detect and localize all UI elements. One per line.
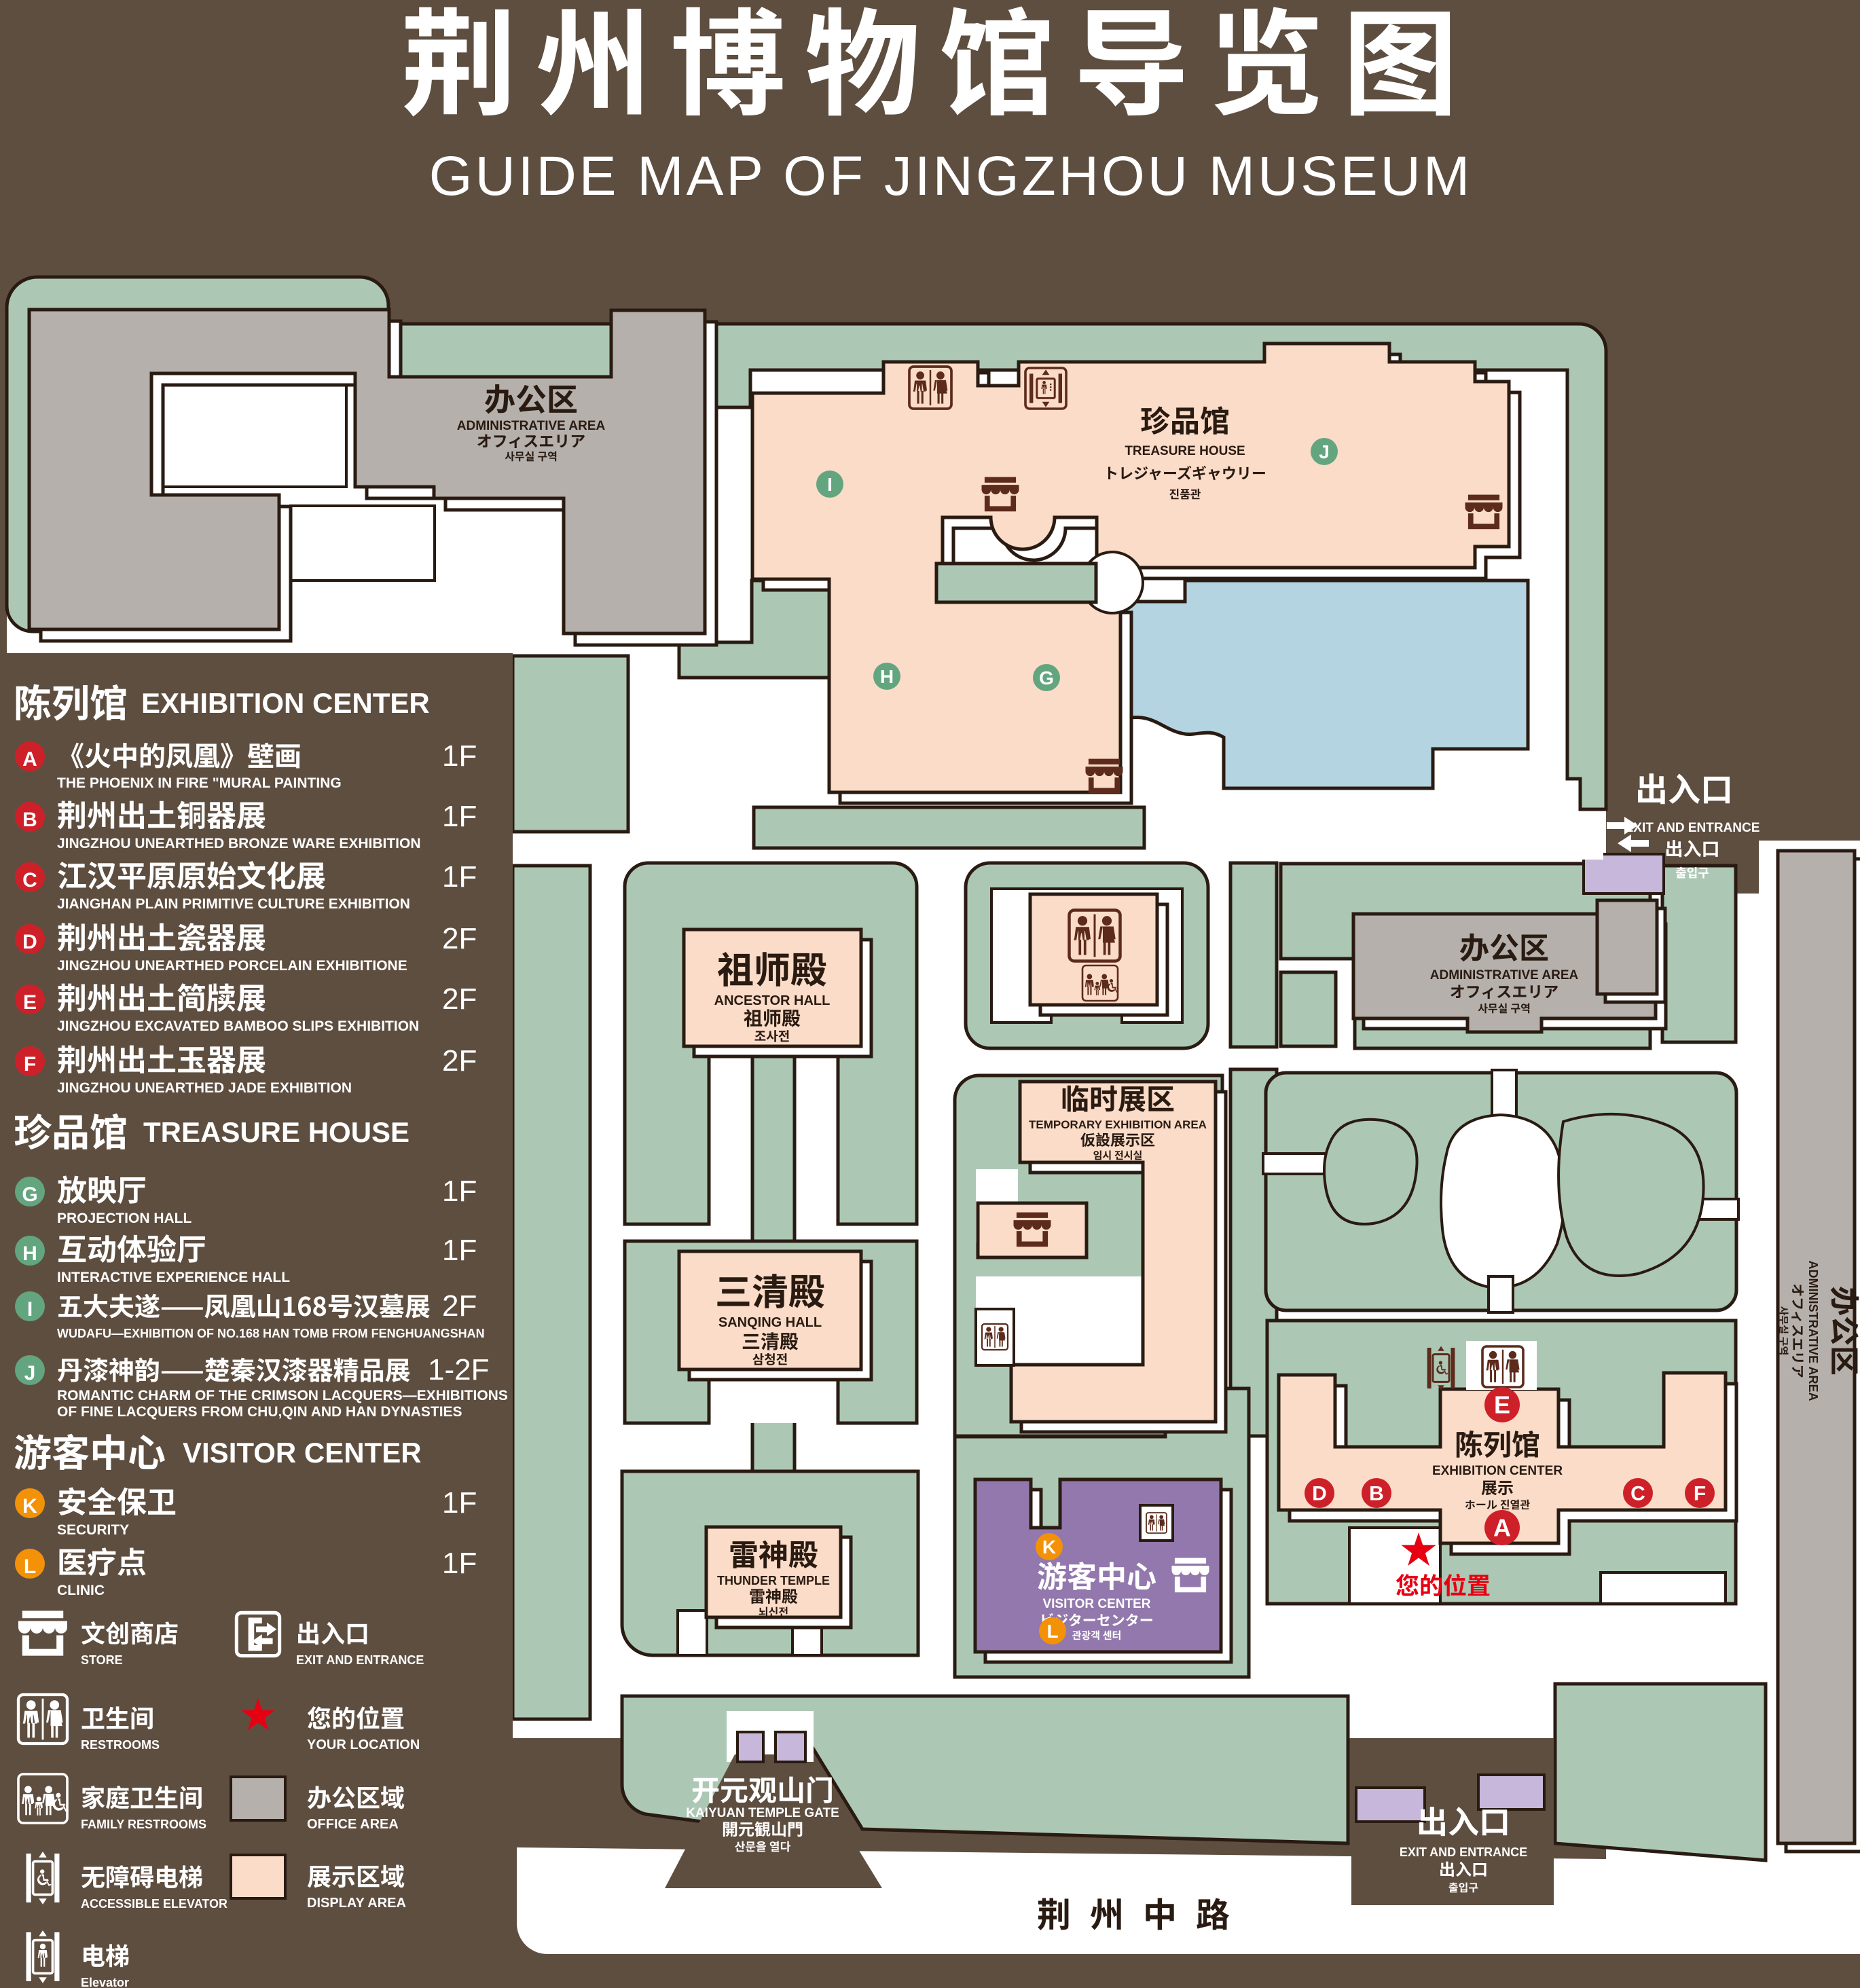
svg-text:뇌신전: 뇌신전 (759, 1603, 788, 1619)
svg-text:G: G (22, 1183, 37, 1206)
svg-text:安全保卫: 安全保卫 (57, 1478, 177, 1522)
svg-text:사무실 구역: 사무실 구역 (1478, 999, 1531, 1016)
svg-text:EXIT AND ENTRANCE: EXIT AND ENTRANCE (296, 1653, 424, 1667)
svg-text:仮設展示区: 仮設展示区 (1080, 1128, 1155, 1150)
svg-text:TREASURE HOUSE: TREASURE HOUSE (143, 1116, 409, 1148)
svg-text:放映厅: 放映厅 (57, 1166, 147, 1210)
svg-text:2F: 2F (442, 982, 477, 1016)
svg-text:Elevator: Elevator (81, 1976, 129, 1988)
svg-text:CLINIC: CLINIC (57, 1583, 105, 1598)
svg-text:OF FINE LACQUERS FROM CHU,QIN: OF FINE LACQUERS FROM CHU,QIN AND HAN DY… (57, 1404, 462, 1420)
svg-text:출입구: 출입구 (1675, 864, 1709, 881)
svg-text:荆州中路: 荆州中路 (1037, 1888, 1249, 1937)
svg-text:TREASURE HOUSE: TREASURE HOUSE (1125, 444, 1245, 458)
svg-text:J: J (1319, 441, 1330, 462)
svg-text:您的位置: 您的位置 (1396, 1567, 1491, 1602)
svg-text:H: H (22, 1242, 37, 1265)
svg-text:JIANGHAN PLAIN PRIMITIVE CULTU: JIANGHAN PLAIN PRIMITIVE CULTURE EXHIBIT… (57, 896, 410, 912)
svg-text:荆州出土瓷器展: 荆州出土瓷器展 (57, 914, 266, 957)
svg-text:ACCESSIBLE ELEVATOR: ACCESSIBLE ELEVATOR (81, 1897, 227, 1911)
svg-text:家庭卫生间: 家庭卫生间 (81, 1779, 203, 1814)
svg-text:VISITOR CENTER: VISITOR CENTER (1042, 1597, 1150, 1611)
svg-text:游客中心: 游客中心 (14, 1423, 166, 1478)
svg-text:1F: 1F (442, 800, 477, 833)
svg-text:I: I (27, 1298, 33, 1321)
svg-text:사무실 구역: 사무실 구역 (505, 447, 558, 464)
svg-text:J: J (24, 1362, 36, 1384)
svg-text:PROJECTION HALL: PROJECTION HALL (57, 1211, 192, 1226)
svg-text:DISPLAY AREA: DISPLAY AREA (307, 1896, 406, 1911)
svg-text:オフィスエリア: オフィスエリア (1450, 979, 1559, 1002)
svg-text:관광객 센터: 관광객 센터 (1072, 1628, 1122, 1642)
svg-text:荆州出土铜器展: 荆州出土铜器展 (57, 792, 266, 835)
svg-text:雷神殿: 雷神殿 (729, 1531, 818, 1575)
svg-text:開元観山門: 開元観山門 (722, 1816, 803, 1840)
svg-text:出入口: 出入口 (1417, 1798, 1510, 1843)
svg-text:五大夫遂——凤凰山168号汉墓展: 五大夫遂——凤凰山168号汉墓展 (57, 1286, 431, 1323)
svg-text:出入口: 出入口 (296, 1615, 369, 1650)
svg-text:展示: 展示 (1481, 1475, 1514, 1498)
svg-text:THE PHOENIX IN FIRE "MURAL PAI: THE PHOENIX IN FIRE "MURAL PAINTING (57, 775, 342, 791)
svg-text:B: B (22, 809, 37, 831)
svg-text:A: A (1493, 1514, 1511, 1542)
svg-text:진품관: 진품관 (1169, 485, 1201, 502)
svg-text:JINGZHOU UNEARTHED PORCELAIN E: JINGZHOU UNEARTHED PORCELAIN EXHIBITIONE (57, 958, 407, 974)
svg-text:E: E (1494, 1391, 1510, 1419)
svg-text:A: A (22, 748, 37, 771)
svg-text:INTERACTIVE EXPERIENCE HALL: INTERACTIVE EXPERIENCE HALL (57, 1270, 290, 1285)
svg-text:荆州博物馆导览图: 荆州博物馆导览图 (401, 0, 1477, 139)
svg-text:SECURITY: SECURITY (57, 1522, 129, 1538)
svg-text:临时展区: 临时展区 (1061, 1077, 1175, 1118)
svg-text:JINGZHOU EXCAVATED BAMBOO SLIP: JINGZHOU EXCAVATED BAMBOO SLIPS EXHIBITI… (57, 1018, 419, 1034)
svg-text:珍品馆: 珍品馆 (14, 1103, 128, 1158)
svg-text:荆州出土简牍展: 荆州出土简牍展 (57, 974, 266, 1018)
svg-text:办公区: 办公区 (1825, 1286, 1860, 1376)
svg-text:卫生间: 卫生间 (81, 1699, 154, 1735)
svg-text:D: D (1312, 1483, 1327, 1505)
svg-text:无障碍电梯: 无障碍电梯 (81, 1858, 203, 1894)
svg-text:C: C (22, 869, 37, 891)
svg-text:조사전: 조사전 (754, 1027, 790, 1045)
svg-text:FAMILY RESTROOMS: FAMILY RESTROOMS (81, 1818, 206, 1831)
svg-text:办公区域: 办公区域 (307, 1779, 405, 1814)
svg-text:1F: 1F (442, 1486, 477, 1520)
svg-text:三清殿: 三清殿 (715, 1262, 825, 1316)
svg-text:산문을 열다: 산문을 열다 (735, 1837, 791, 1854)
svg-text:办公区: 办公区 (1459, 924, 1549, 968)
svg-text:オフィスエリア: オフィスエリア (1789, 1283, 1808, 1378)
svg-text:您的位置: 您的位置 (307, 1699, 405, 1735)
svg-text:JINGZHOU UNEARTHED BRONZE WARE: JINGZHOU UNEARTHED BRONZE WARE EXHIBITIO… (57, 836, 421, 851)
svg-text:E: E (23, 991, 37, 1014)
svg-text:展示区域: 展示区域 (307, 1858, 405, 1893)
svg-text:K: K (1042, 1536, 1056, 1558)
svg-text:G: G (1039, 667, 1054, 688)
svg-text:OFFICE AREA: OFFICE AREA (307, 1817, 399, 1832)
svg-text:EXIT AND ENTRANCE: EXIT AND ENTRANCE (1625, 821, 1760, 835)
svg-text:珍品馆: 珍品馆 (1140, 397, 1230, 441)
svg-text:I: I (827, 474, 833, 495)
svg-text:K: K (22, 1495, 37, 1517)
svg-text:陈列馆: 陈列馆 (1455, 1422, 1540, 1464)
svg-text:VISITOR CENTER: VISITOR CENTER (183, 1437, 422, 1469)
svg-text:1F: 1F (442, 860, 477, 894)
svg-text:出入口: 出入口 (1665, 834, 1720, 861)
svg-text:C: C (1630, 1483, 1645, 1505)
svg-text:ROMANTIC CHARM OF THE CRIMSON: ROMANTIC CHARM OF THE CRIMSON LACQUERS—E… (57, 1388, 508, 1403)
svg-text:办公区: 办公区 (484, 375, 578, 420)
svg-text:互动体验厅: 互动体验厅 (57, 1226, 206, 1269)
svg-text:2F: 2F (442, 922, 477, 955)
svg-text:1-2F: 1-2F (428, 1353, 489, 1386)
svg-text:GUIDE MAP OF JINGZHOU MUSEUM: GUIDE MAP OF JINGZHOU MUSEUM (429, 145, 1472, 207)
svg-text:医疗点: 医疗点 (57, 1539, 147, 1582)
svg-text:WUDAFU—EXHIBITION OF NO.168 HA: WUDAFU—EXHIBITION OF NO.168 HAN TOMB FRO… (57, 1327, 485, 1340)
svg-text:사무실 구역: 사무실 구역 (1776, 1306, 1791, 1356)
svg-text:电梯: 电梯 (81, 1937, 130, 1972)
svg-text:임시 전시실: 임시 전시실 (1093, 1148, 1143, 1162)
svg-text:F: F (1694, 1483, 1706, 1505)
svg-text:H: H (880, 666, 894, 687)
svg-text:出入口: 出入口 (1439, 1856, 1488, 1880)
svg-text:삼청전: 삼청전 (752, 1350, 788, 1368)
svg-text:丹漆神韵——楚秦汉漆器精品展: 丹漆神韵——楚秦汉漆器精品展 (57, 1350, 411, 1387)
svg-text:출입구: 출입구 (1448, 1879, 1478, 1895)
svg-text:JINGZHOU UNEARTHED JADE EXHIBI: JINGZHOU UNEARTHED JADE EXHIBITION (57, 1080, 352, 1096)
svg-text:RESTROOMS: RESTROOMS (81, 1738, 160, 1752)
svg-text:EXHIBITION CENTER: EXHIBITION CENTER (141, 687, 430, 719)
svg-text:トレジャーズギャウリー: トレジャーズギャウリー (1104, 462, 1266, 483)
svg-text:2F: 2F (442, 1289, 477, 1323)
svg-text:D: D (22, 931, 37, 953)
svg-text:《火中的凤凰》壁画: 《火中的凤凰》壁画 (57, 735, 302, 774)
svg-text:游客中心: 游客中心 (1037, 1553, 1156, 1596)
svg-text:文创商店: 文创商店 (81, 1615, 179, 1650)
svg-text:1F: 1F (442, 1175, 477, 1208)
svg-text:1F: 1F (442, 739, 477, 773)
svg-text:出入口: 出入口 (1635, 763, 1733, 811)
svg-text:L: L (1046, 1621, 1058, 1642)
svg-text:B: B (1369, 1483, 1384, 1505)
svg-text:荆州出土玉器展: 荆州出土玉器展 (57, 1036, 266, 1080)
svg-text:1F: 1F (442, 1234, 477, 1267)
svg-text:YOUR LOCATION: YOUR LOCATION (307, 1737, 420, 1752)
svg-text:开元观山门: 开元观山门 (691, 1768, 834, 1809)
svg-text:1F: 1F (442, 1547, 477, 1580)
svg-text:F: F (24, 1053, 36, 1075)
svg-text:祖师殿: 祖师殿 (717, 940, 827, 994)
svg-text:ホール 진열관: ホール 진열관 (1465, 1496, 1530, 1512)
svg-text:江汉平原原始文化展: 江汉平原原始文化展 (57, 852, 326, 896)
svg-text:陈列馆: 陈列馆 (14, 674, 128, 729)
svg-text:L: L (24, 1556, 36, 1578)
svg-text:STORE: STORE (81, 1653, 123, 1667)
svg-text:2F: 2F (442, 1044, 477, 1078)
